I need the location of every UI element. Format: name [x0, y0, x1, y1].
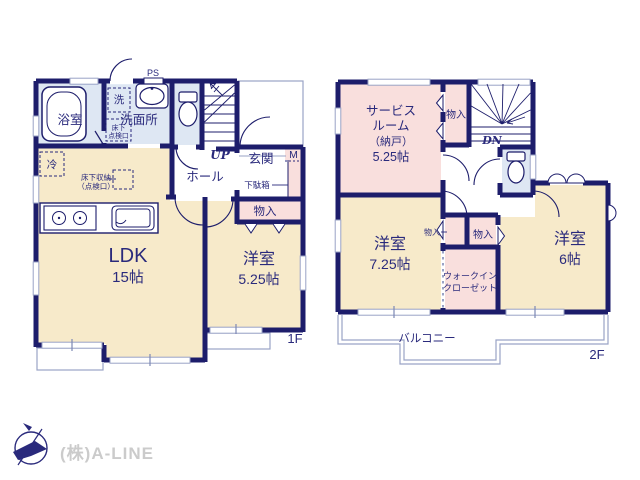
footer: (株)A-LINE: [13, 423, 154, 465]
terrace-right: [206, 333, 270, 349]
label-ldk: LDK: [109, 245, 149, 267]
label-closet-top-2f: 物入: [446, 108, 466, 121]
washbasin: [136, 84, 168, 108]
label-ldk-size: 15帖: [112, 269, 144, 286]
label-western-1f: 洋室: [243, 250, 275, 268]
balcony-outline: [338, 315, 608, 364]
floor-2f: サービス ルーム （納戸） 5.25帖 物入 DN 洋室 7.25帖 洋室 6帖…: [335, 79, 616, 364]
label-closet-small: 物入: [424, 227, 440, 237]
label-service-size: 5.25帖: [373, 149, 410, 164]
toilet-fixture-2f: [507, 152, 525, 183]
label-service-2: ルーム: [372, 119, 409, 133]
label-fridge: 冷: [47, 158, 58, 171]
compass-icon: [13, 423, 47, 465]
label-bathroom: 浴室: [57, 112, 82, 127]
label-western-1f-size: 5.25帖: [238, 271, 279, 287]
label-western-a: 洋室: [374, 235, 406, 253]
label-washroom: 洗面所: [120, 113, 158, 127]
company-watermark: (株)A-LINE: [60, 443, 154, 463]
label-ps: PS: [147, 68, 159, 78]
floor-plan-page: PS 浴室 洗 洗面所 床下 点検口 UP ホール 玄関 M 下駄箱 物入 冷 …: [0, 0, 640, 480]
label-floor-1f: 1F: [287, 331, 302, 346]
label-meter: M: [289, 149, 298, 161]
toilet-fixture-1f: [179, 92, 197, 126]
label-western-b-size: 6帖: [559, 251, 581, 267]
kitchen-counter: [40, 203, 158, 233]
room-closet-small: [445, 217, 465, 245]
label-closet-1f: 物入: [254, 204, 277, 218]
room-western-a: [340, 197, 441, 310]
label-service-3: （納戸）: [369, 135, 413, 148]
label-washer: 洗: [114, 94, 125, 106]
label-wic-1: ウォークイン: [443, 271, 497, 281]
terrace-left: [37, 348, 103, 370]
label-western-b: 洋室: [554, 230, 586, 248]
label-underfloor-1: 床下収納: [81, 172, 111, 182]
label-hall: ホール: [186, 170, 224, 184]
label-balcony: バルコニー: [398, 332, 455, 345]
floor-plan-drawing: PS 浴室 洗 洗面所 床下 点検口 UP ホール 玄関 M 下駄箱 物入 冷 …: [0, 0, 640, 480]
label-service-1: サービス: [366, 104, 416, 118]
label-hatch-1: 床下: [112, 123, 126, 132]
label-wic-2: クローゼット: [443, 282, 497, 293]
floor-1f: PS 浴室 洗 洗面所 床下 点検口 UP ホール 玄関 M 下駄箱 物入 冷 …: [33, 59, 306, 370]
entrance-porch: [238, 81, 303, 147]
label-western-a-size: 7.25帖: [369, 256, 410, 272]
label-up: UP: [210, 148, 230, 162]
label-floor-2f: 2F: [589, 347, 604, 362]
label-dn: DN: [481, 134, 503, 147]
label-closet-mid: 物入: [473, 228, 493, 241]
label-hatch-2: 点検口: [108, 131, 128, 140]
shoe-box-cabinet: [288, 158, 301, 197]
label-underfloor-2: （点検口）: [77, 181, 115, 191]
label-shoe-box: 下駄箱: [244, 180, 270, 190]
label-entrance: 玄関: [248, 151, 273, 166]
